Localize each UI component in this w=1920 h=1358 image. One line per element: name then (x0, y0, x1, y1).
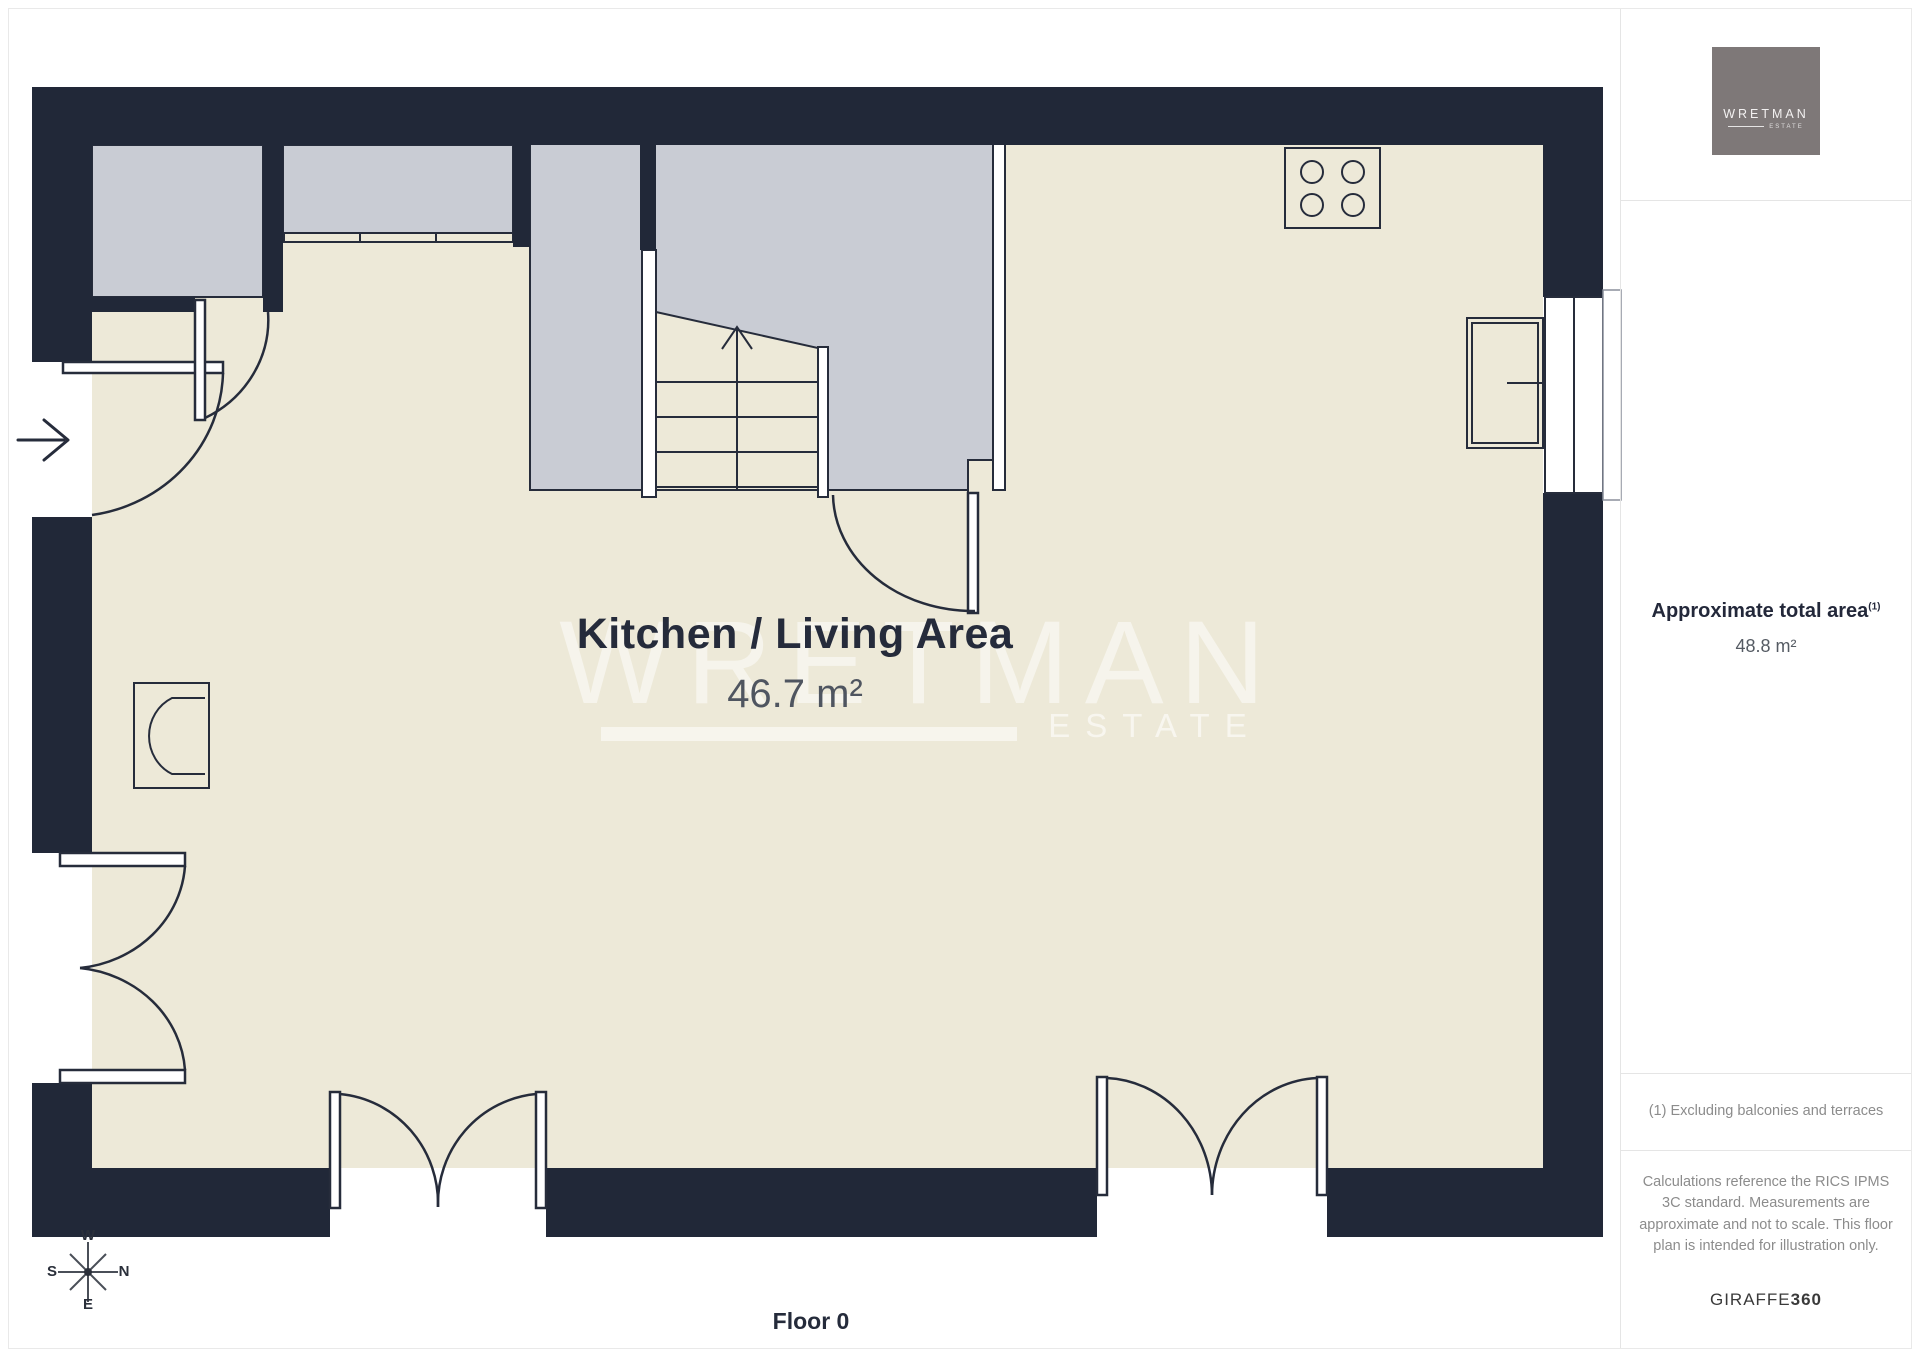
total-area-value: 48.8 m² (1626, 636, 1906, 657)
wardrobe-sliding-doors (284, 233, 513, 242)
floor-label: Floor 0 (711, 1308, 911, 1335)
wall-interior-2 (92, 297, 195, 312)
entrance-arrow-icon (18, 420, 68, 460)
wall-right-upper (1543, 87, 1603, 297)
window-sill (1603, 290, 1621, 500)
room-name-label: Kitchen / Living Area (535, 610, 1055, 659)
stove-icon (1285, 148, 1380, 228)
giraffe360-brand: GIRAFFE360 (1626, 1290, 1906, 1310)
page: WRETMAN ESTATE Kitchen / Living Area 46.… (0, 0, 1920, 1358)
compass-north-label: N (112, 1263, 136, 1280)
compass-icon (58, 1242, 118, 1302)
window (1545, 290, 1621, 500)
disclaimer-text: Calculations reference the RICS IPMS 3C … (1636, 1172, 1896, 1258)
wall-right-lower (1543, 493, 1603, 1237)
wall-interior-4 (640, 143, 656, 250)
sidebar-divider-1 (1621, 200, 1912, 201)
agency-logo-sub: ESTATE (1769, 124, 1803, 130)
total-area-title: Approximate total area(1) (1626, 600, 1906, 623)
grey-room-topleft (92, 145, 263, 297)
wall-interior-3 (513, 143, 530, 247)
fridge-icon (1467, 318, 1543, 448)
wall-interior-1 (263, 145, 283, 312)
area-footnote: (1) Excluding balconies and terraces (1626, 1103, 1906, 1119)
agency-logo-brand: WRETMAN (1723, 107, 1809, 121)
agency-logo-line (1728, 126, 1764, 127)
stairwell-partition (993, 143, 1005, 490)
wall-top (32, 87, 1603, 145)
giraffe360-suffix: 360 (1791, 1290, 1822, 1309)
watermark-bar (601, 727, 1017, 741)
compass-east-label: E (76, 1296, 100, 1313)
sidebar-divider-2 (1621, 1073, 1912, 1074)
giraffe360-name: GIRAFFE (1710, 1290, 1791, 1309)
compass-south-label: S (40, 1263, 64, 1280)
sidebar-divider-vertical (1620, 9, 1621, 1349)
grey-room-topmiddle (283, 145, 513, 233)
compass-west-label: W (76, 1227, 100, 1244)
agency-logo: WRETMAN ESTATE (1712, 47, 1820, 155)
wall-left-middle (32, 517, 92, 853)
sidebar-divider-3 (1621, 1150, 1912, 1151)
watermark-subtext: ESTATE (1040, 707, 1270, 745)
sink-fixture-icon (134, 683, 209, 788)
room-area-label: 46.7 m² (535, 672, 1055, 717)
total-area-footnote-marker: (1) (1868, 601, 1880, 612)
wall-bottom-middle (546, 1168, 1097, 1237)
wall-left-upper (32, 87, 92, 362)
